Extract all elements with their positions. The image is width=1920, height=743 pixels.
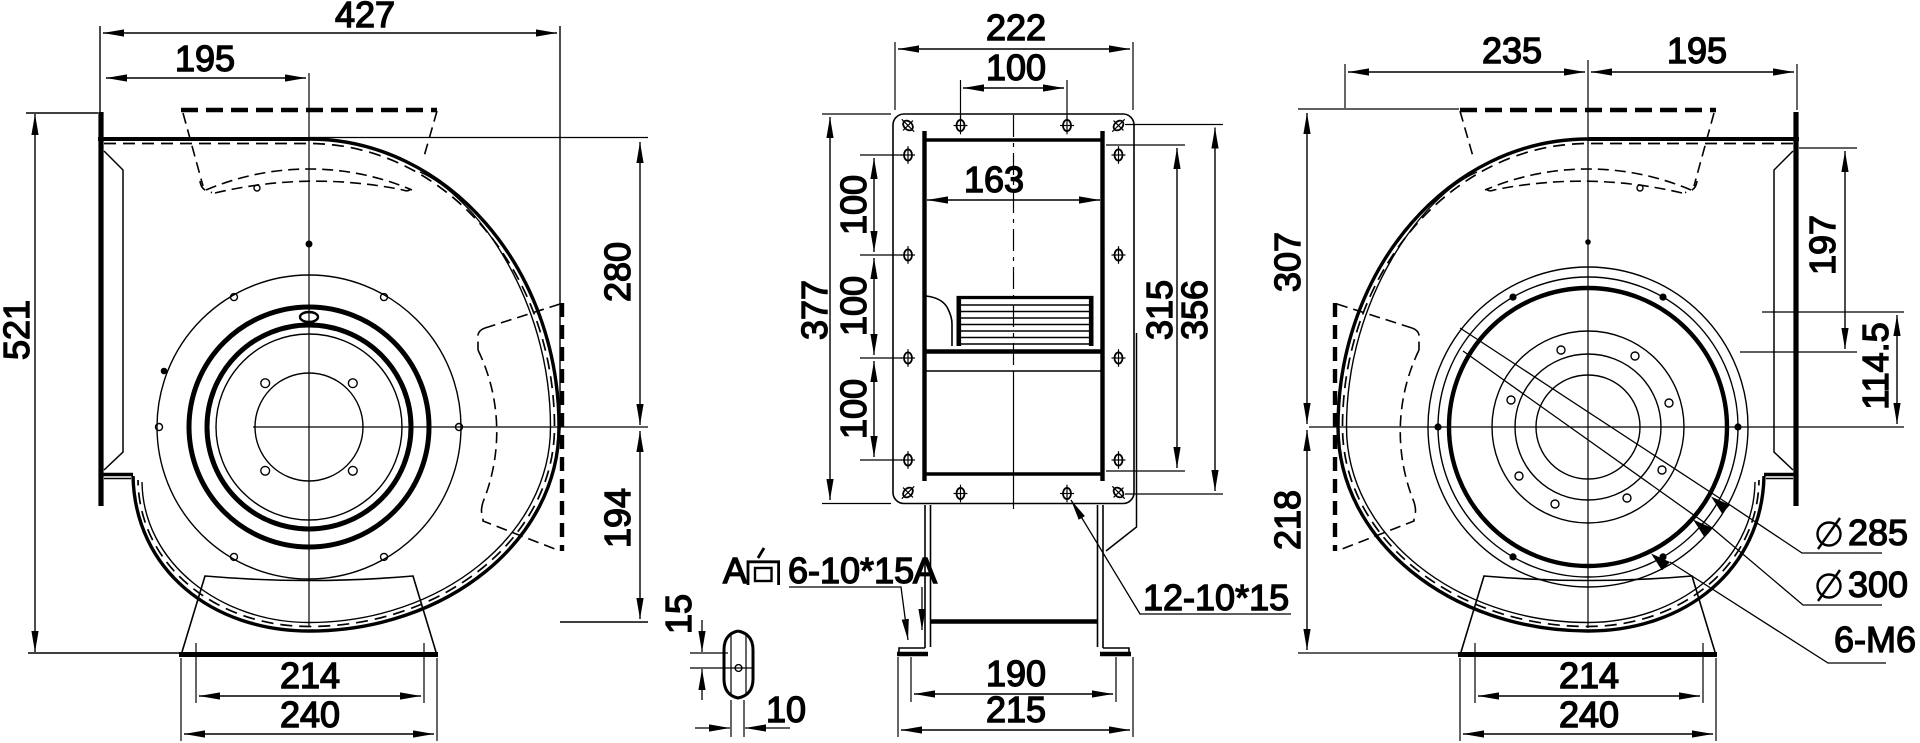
svg-text:194: 194 [597,488,638,548]
svg-text:6-M6: 6-M6 [1834,619,1916,660]
svg-text:215: 215 [986,689,1046,730]
svg-text:222: 222 [986,7,1046,48]
svg-text:190: 190 [986,653,1046,694]
svg-text:15: 15 [658,594,699,634]
svg-text:114.5: 114.5 [1855,322,1896,409]
svg-text:197: 197 [1802,215,1843,275]
svg-text:307: 307 [1267,232,1308,292]
svg-text:280: 280 [597,242,638,302]
svg-text:195: 195 [1667,30,1727,71]
svg-text:100: 100 [986,47,1046,88]
svg-text:214: 214 [280,655,340,696]
svg-text:240: 240 [1559,694,1619,735]
svg-text:218: 218 [1267,490,1308,550]
svg-text:100: 100 [833,379,874,439]
svg-text:356: 356 [1174,280,1215,340]
svg-text:12-10*15: 12-10*15 [1143,577,1289,618]
svg-text:100: 100 [833,175,874,235]
svg-text:A: A [913,550,937,591]
svg-text:427: 427 [335,0,395,35]
svg-text:195: 195 [175,38,235,79]
svg-text:240: 240 [280,694,340,735]
svg-text:100: 100 [833,276,874,336]
svg-text:A: A [723,550,747,591]
svg-text:300: 300 [1848,564,1908,605]
svg-text:377: 377 [794,280,835,340]
svg-text:163: 163 [964,159,1024,200]
svg-text:521: 521 [0,300,37,360]
svg-text:285: 285 [1848,512,1908,553]
svg-text:10: 10 [766,689,806,730]
svg-text:6-10*15: 6-10*15 [788,550,914,591]
svg-text:235: 235 [1482,30,1542,71]
svg-text:214: 214 [1559,655,1619,696]
